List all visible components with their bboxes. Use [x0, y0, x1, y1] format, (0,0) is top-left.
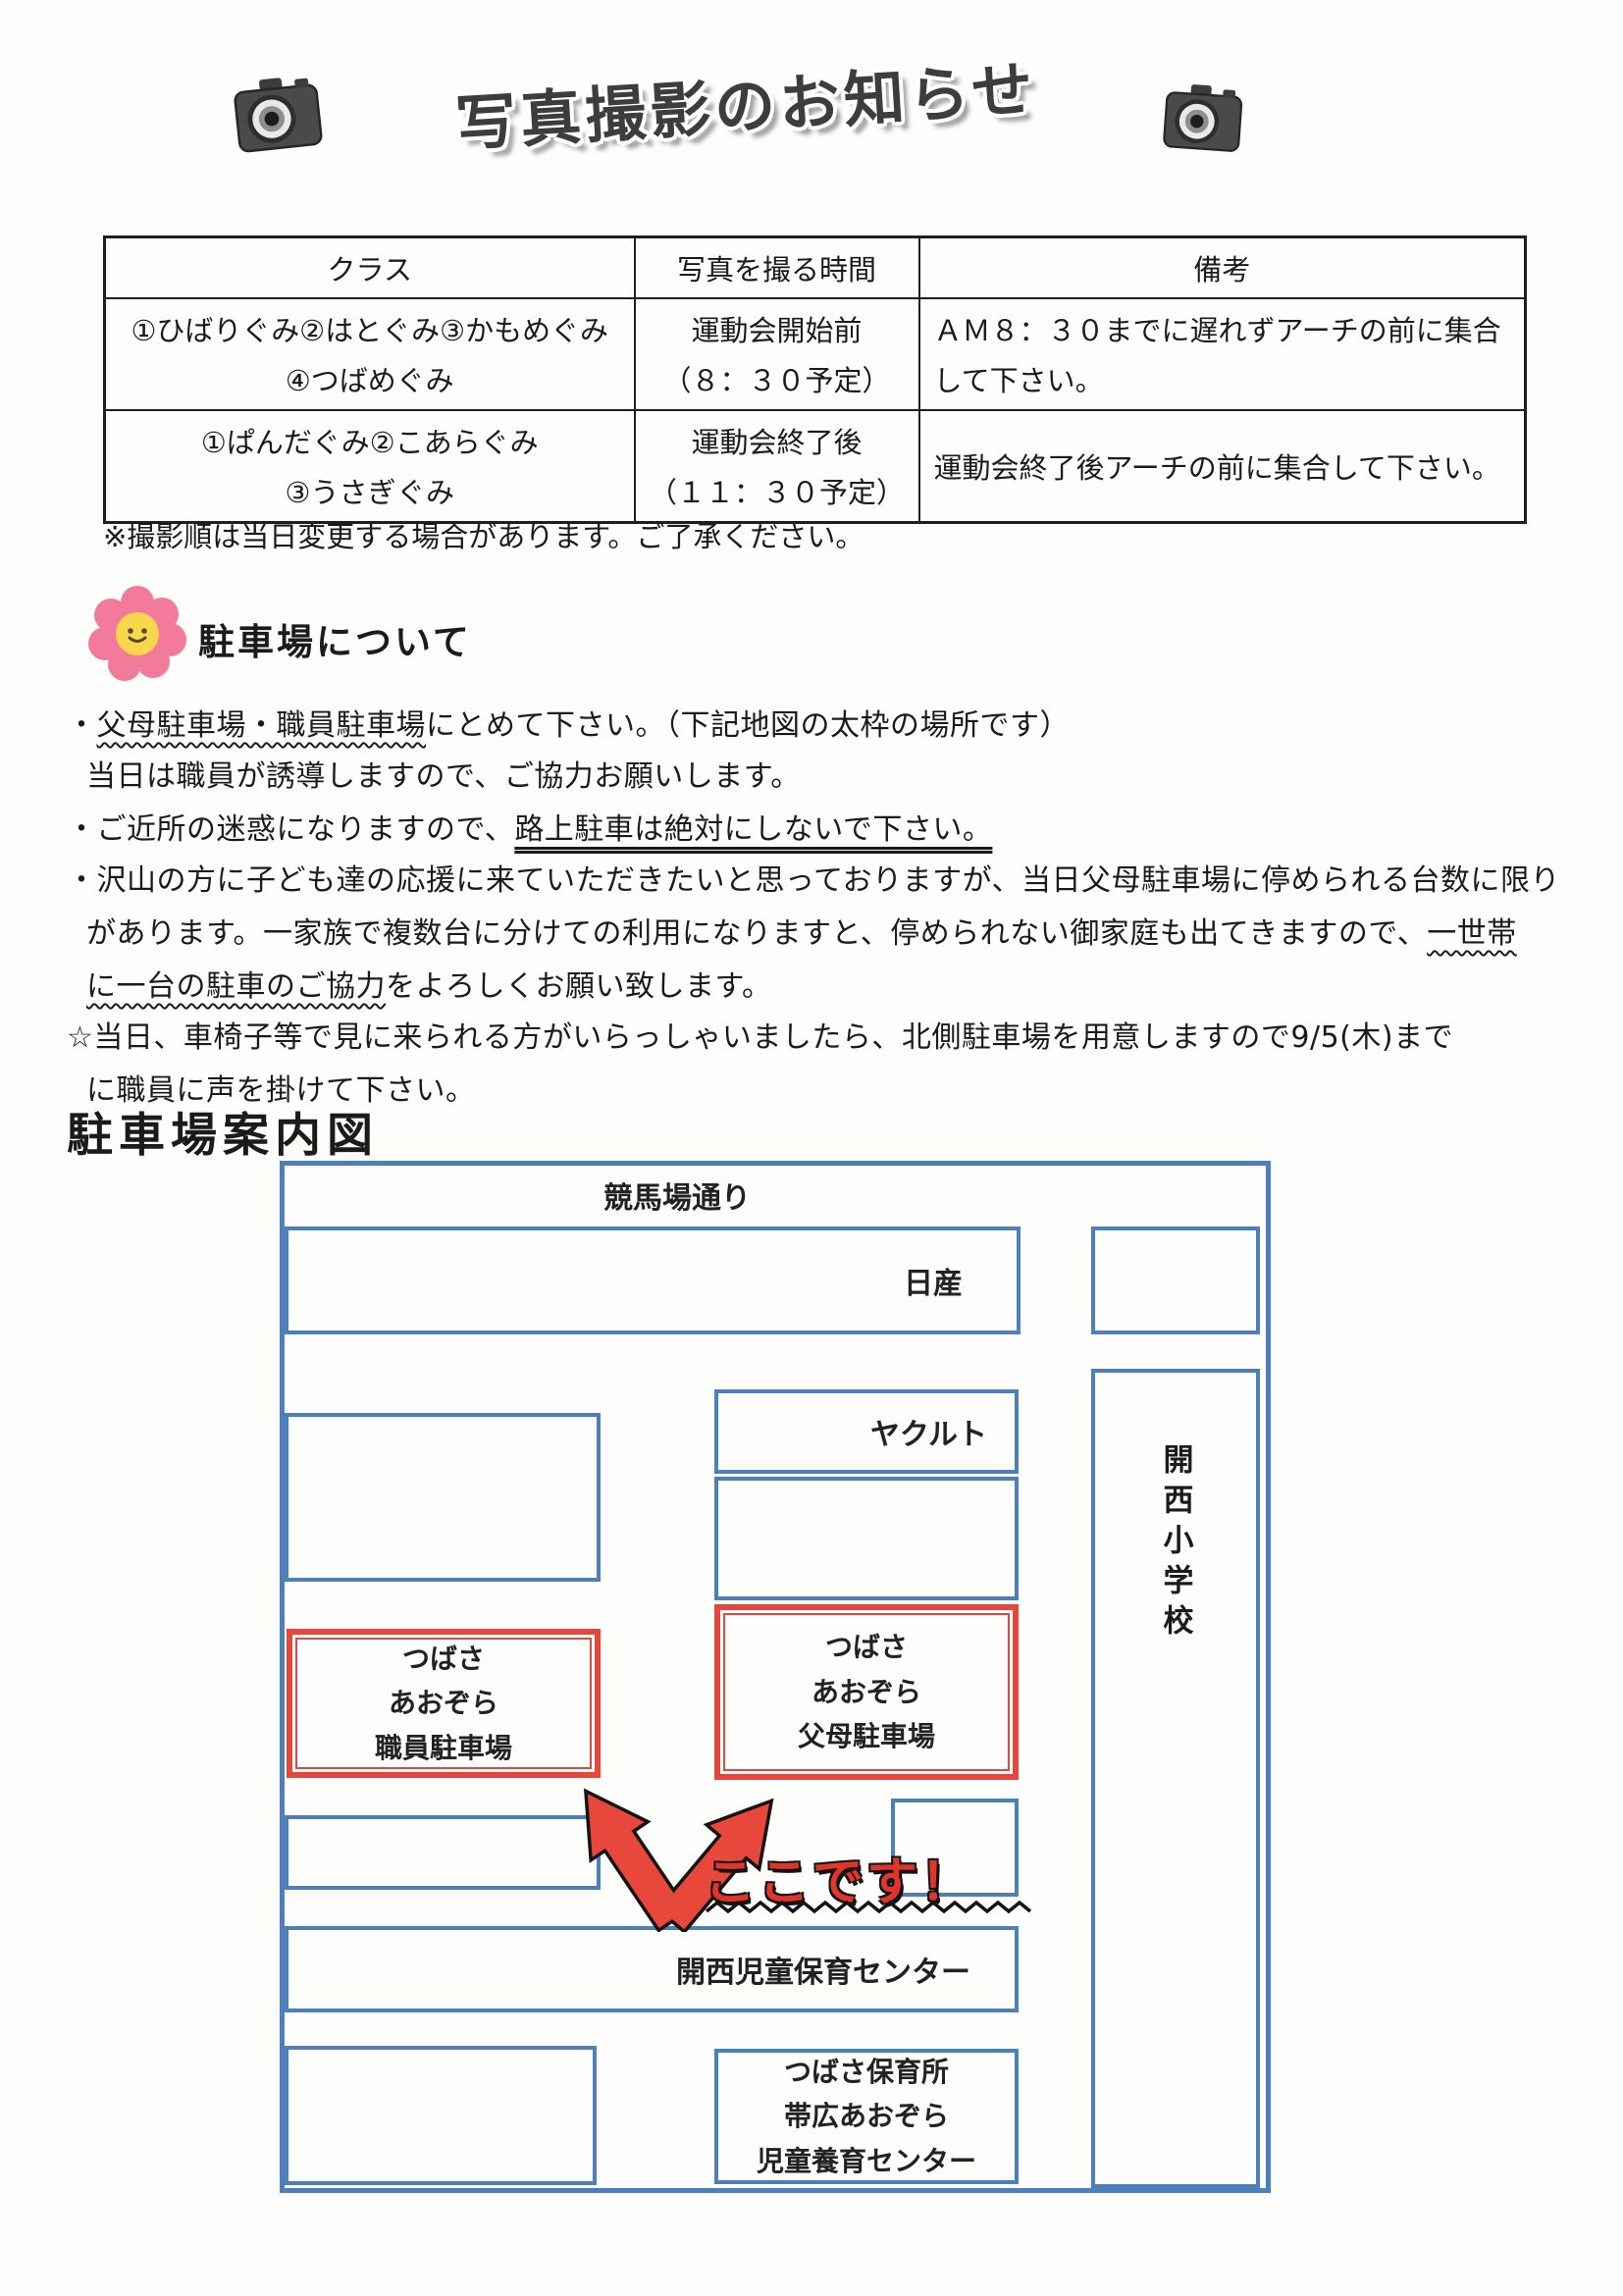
parking-bullet: ・ご近所の迷惑になりますので、路上駐車は絶対にしないで下さい。: [67, 805, 992, 848]
lot-label-line: あおぞら: [389, 1681, 498, 1725]
childcare-center-block: 開西児童保育センター: [285, 1926, 1019, 2012]
col-header-time: 写真を撮る時間: [635, 237, 919, 298]
camera-icon: [1160, 76, 1245, 160]
cell-text: して下さい。: [934, 358, 1104, 399]
school-label: 開西小学校: [1154, 1443, 1198, 1644]
empty-block: [285, 1413, 601, 1582]
bullet-text-underlined: に一台の駐車のご協力: [86, 969, 386, 1004]
bullet-text: ・: [67, 708, 97, 743]
camera-icon: [229, 65, 326, 164]
nursery-label-line: 児童養育センター: [757, 2139, 976, 2183]
cell-text: （１１：３０予定）: [649, 470, 905, 511]
page-title: 写真撮影のお知らせ: [322, 31, 1170, 171]
nursery-label-line: 帯広あおぞら: [784, 2094, 949, 2138]
cell-text: 運動会終了後: [691, 420, 862, 461]
empty-block: [285, 2046, 597, 2185]
bullet-text: ・沢山の方に子ども達の応援に来ていただきたいと思っておりますが、当日父母駐車場に…: [67, 863, 1560, 898]
lot-label-line: あおぞら: [811, 1670, 921, 1714]
staff-parking-lot: つばさ あおぞら 職員駐車場: [287, 1629, 601, 1778]
tsubasa-nursery-block: つばさ保育所 帯広あおぞら 児童養育センター: [714, 2049, 1019, 2184]
yakult-block: ヤクルト: [714, 1389, 1019, 1474]
parking-bullet: ・沢山の方に子ども達の応援に来ていただきたいと思っておりますが、当日父母駐車場に…: [67, 856, 1560, 899]
cell-text: ④つばめぐみ: [286, 358, 454, 399]
cell-text: ＡＭ８：３０までに遅れずアーチの前に集合: [934, 308, 1501, 349]
empty-block: [714, 1477, 1019, 1600]
nissan-block: 日産: [285, 1226, 1021, 1334]
bullet-text: をよろしくお願い致します。: [386, 969, 772, 1004]
class-cell: ①ぱんだぐみ②こあらぐみ ③うさぎぐみ: [105, 410, 635, 523]
road-label: 競馬場通り: [603, 1174, 751, 1217]
yakult-label: ヤクルト: [870, 1410, 987, 1453]
table-footnote: ※撮影順は当日変更する場合があります。ご了承ください。: [103, 514, 864, 555]
zigzag-underline: [705, 1900, 1034, 1915]
bullet-text-underlined: 一世帯: [1427, 916, 1517, 951]
bullet-text: 当日は職員が誘導しますので、ご協力お願いします。: [86, 759, 801, 794]
parking-bullet-continuation: 当日は職員が誘導しますので、ご協力お願いします。: [86, 752, 801, 795]
empty-block: [1091, 1226, 1260, 1334]
time-cell: 運動会開始前 （８：３０予定）: [635, 298, 919, 410]
table-header-row: クラス 写真を撮る時間 備考: [105, 237, 1526, 298]
bullet-text-underlined: 路上駐車は絶対にしないで下さい。: [514, 812, 992, 847]
parking-bullet: ・父母駐車場・職員駐車場にとめて下さい。（下記地図の太枠の場所です）: [67, 701, 1070, 744]
col-header-notes: 備考: [919, 237, 1526, 298]
notice-page: 写真撮影のお知らせ クラス 写真を撮る時間 備考 ①ひばりぐみ②はとぐみ③かもめ…: [0, 0, 1623, 2296]
notes-cell: ＡＭ８：３０までに遅れずアーチの前に集合 して下さい。: [919, 298, 1526, 410]
cell-text: ①ひばりぐみ②はとぐみ③かもめぐみ: [131, 308, 608, 349]
bullet-text: があります。一家族で複数台に分けての利用になりますと、停められない御家庭も出てき…: [86, 916, 1427, 951]
lot-label-line: 父母駐車場: [798, 1714, 935, 1758]
childcare-center-label: 開西児童保育センター: [676, 1948, 970, 1991]
bullet-text-underlined: 父母駐車場・職員駐車場: [97, 708, 427, 743]
parents-parking-lot: つばさ あおぞら 父母駐車場: [714, 1604, 1019, 1780]
flower-icon: [88, 581, 186, 683]
table-row: ①ぱんだぐみ②こあらぐみ ③うさぎぐみ 運動会終了後 （１１：３０予定） 運動会…: [105, 410, 1526, 523]
nissan-label: 日産: [904, 1259, 963, 1302]
nursery-label-line: つばさ保育所: [784, 2050, 949, 2094]
parking-bullet-continuation: に一台の駐車のご協力をよろしくお願い致します。: [86, 962, 772, 1005]
bullet-text: にとめて下さい。（下記地図の太枠の場所です）: [426, 708, 1070, 743]
map-heading: 駐車場案内図: [67, 1097, 379, 1165]
school-block: 開西小学校: [1091, 1369, 1260, 2188]
class-cell: ①ひばりぐみ②はとぐみ③かもめぐみ ④つばめぐみ: [105, 298, 635, 410]
lot-label-line: 職員駐車場: [375, 1726, 512, 1770]
bullet-text: ・ご近所の迷惑になりますので、: [67, 812, 514, 847]
cell-text: （８：３０予定）: [662, 358, 890, 399]
cell-text: ①ぱんだぐみ②こあらぐみ: [201, 420, 539, 461]
cell-text: ③うさぎぐみ: [286, 470, 454, 511]
parking-map: 競馬場通り 日産 開西小学校 ヤクルト つばさ あおぞら 職員駐車場 つばさ あ…: [280, 1161, 1271, 2193]
cell-text: 運動会開始前: [691, 308, 862, 349]
parking-bullet-continuation: があります。一家族で複数台に分けての利用になりますと、停められない御家庭も出てき…: [86, 909, 1517, 952]
photo-schedule-table: クラス 写真を撮る時間 備考 ①ひばりぐみ②はとぐみ③かもめぐみ ④つばめぐみ …: [103, 235, 1527, 524]
table-row: ①ひばりぐみ②はとぐみ③かもめぐみ ④つばめぐみ 運動会開始前 （８：３０予定）…: [105, 298, 1526, 410]
parking-section-title: 駐車場について: [198, 612, 472, 665]
parking-bullet: ☆当日、車椅子等で見に来られる方がいらっしゃいましたら、北側駐車場を用意しますの…: [67, 1013, 1453, 1056]
bullet-text: ☆当日、車椅子等で見に来られる方がいらっしゃいましたら、北側駐車場を用意しますの…: [67, 1020, 1453, 1055]
notes-cell: 運動会終了後アーチの前に集合して下さい。: [919, 410, 1526, 523]
time-cell: 運動会終了後 （１１：３０予定）: [635, 410, 919, 523]
lot-label-line: つばさ: [402, 1637, 485, 1681]
lot-label-line: つばさ: [825, 1625, 908, 1669]
cell-text: 運動会終了後アーチの前に集合して下さい。: [934, 445, 1500, 487]
col-header-class: クラス: [105, 237, 635, 298]
